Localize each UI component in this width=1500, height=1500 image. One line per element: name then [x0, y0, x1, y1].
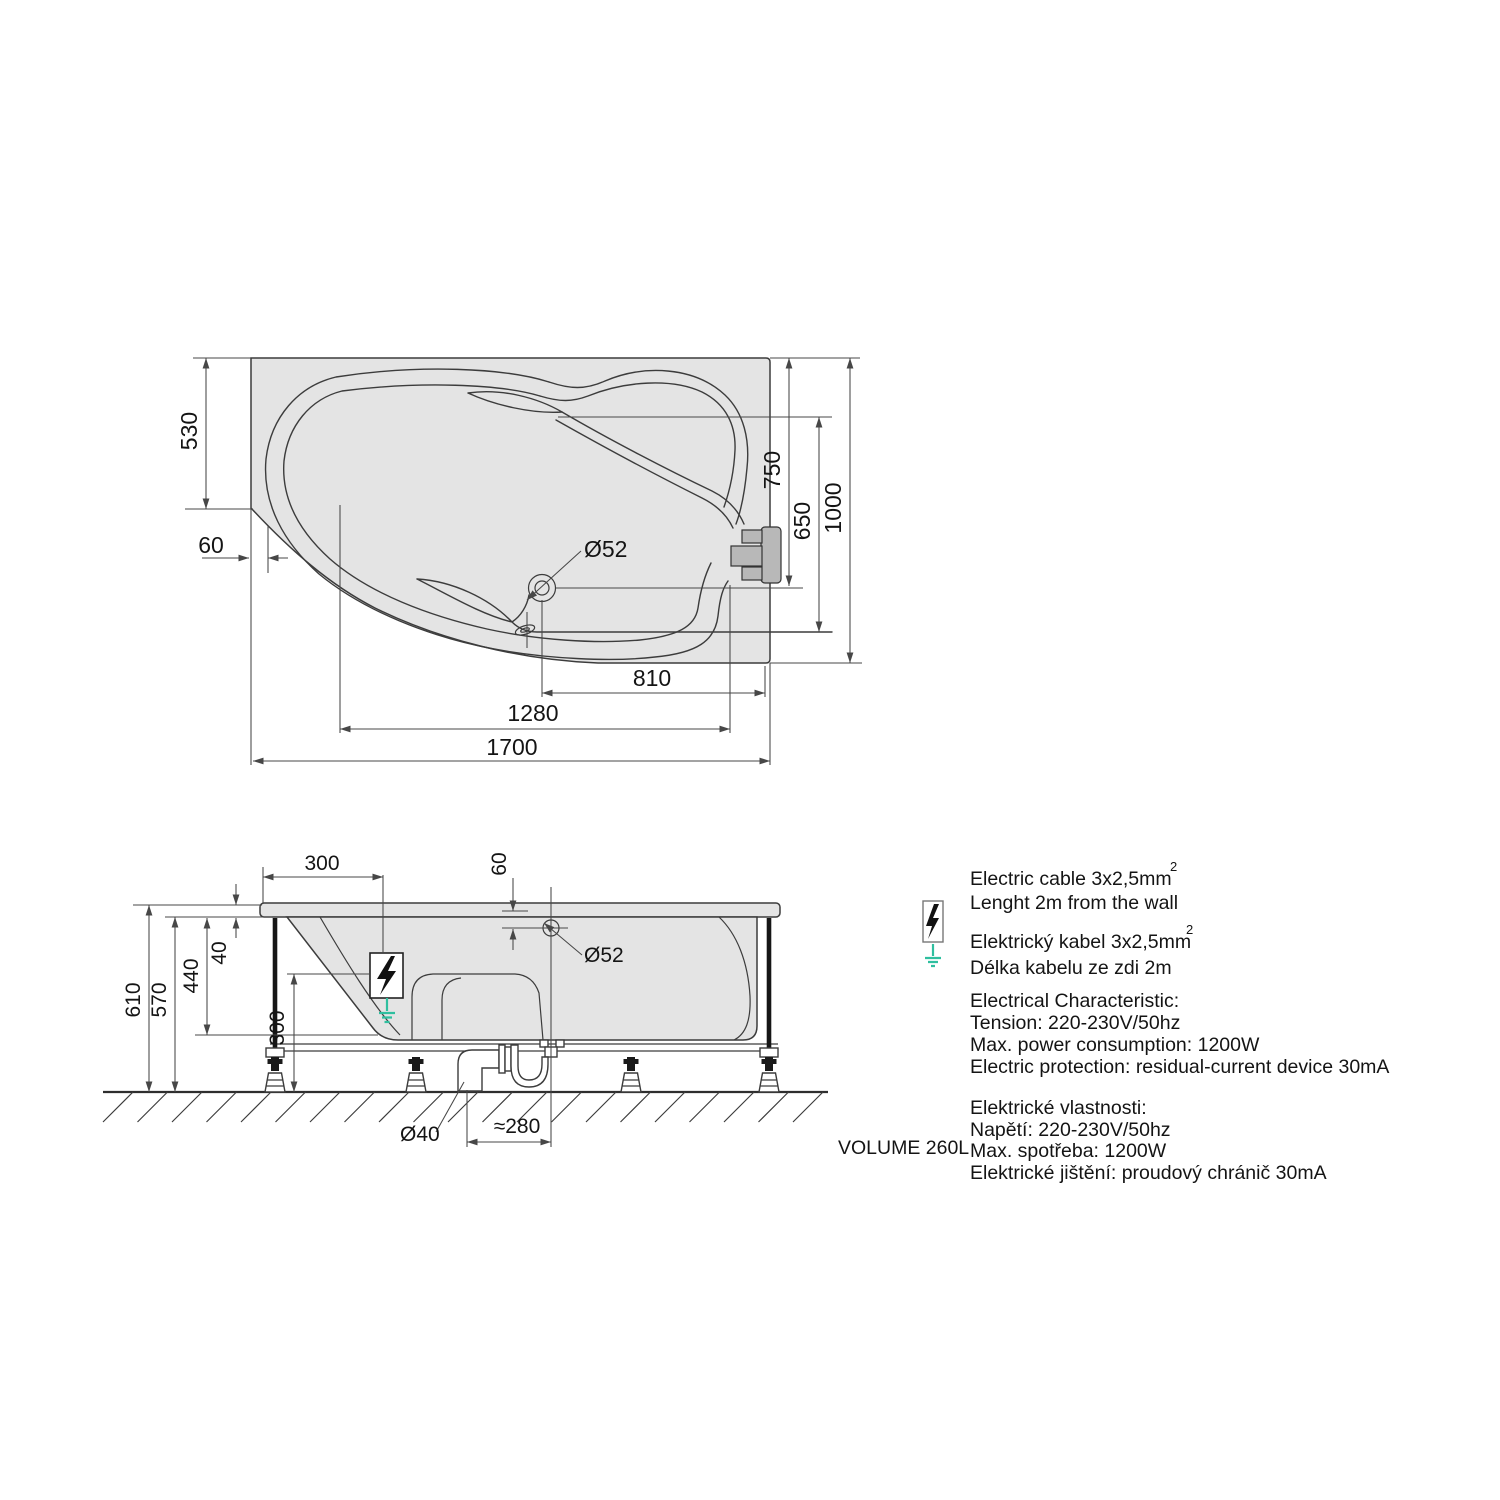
- dim-440: 440: [180, 958, 203, 993]
- note-cable-en-sup: 2: [1170, 859, 1177, 874]
- dim-280: ≈280: [494, 1115, 541, 1138]
- drawing-sheet: 530 60 750 650 1000 810 1280 1700 Ø52: [0, 0, 1500, 1500]
- dim-60-top: 60: [198, 532, 224, 558]
- note-cable-cz-1: Elektrický kabel 3x2,5mm: [970, 931, 1191, 953]
- dim-60-side: 60: [488, 852, 511, 875]
- ground-icon-small: [925, 944, 941, 966]
- dim-drain-dia-side: Ø52: [584, 944, 624, 967]
- tub-rim-section: [260, 903, 780, 917]
- note-elec-en-1: Tension: 220-230V/50hz: [970, 1012, 1180, 1034]
- dim-610: 610: [122, 982, 145, 1017]
- dim-1700: 1700: [486, 734, 537, 760]
- note-elec-en-title: Electrical Characteristic:: [970, 990, 1179, 1012]
- note-elec-cz-title: Elektrické vlastnosti:: [970, 1097, 1147, 1119]
- note-elec-cz-1: Napětí: 220-230V/50hz: [970, 1119, 1171, 1141]
- top-view: 530 60 750 650 1000 810 1280 1700 Ø52: [176, 358, 862, 765]
- dim-300-frame: 300: [266, 1010, 289, 1045]
- dim-570: 570: [148, 982, 171, 1017]
- dim-750: 750: [759, 451, 785, 489]
- note-cable-en-2: Lenght 2m from the wall: [970, 892, 1178, 914]
- dim-300-top: 300: [304, 852, 339, 875]
- tub-deck-outline: [251, 358, 770, 663]
- volume-label: VOLUME 260L: [838, 1137, 969, 1159]
- note-elec-en-2: Max. power consumption: 1200W: [970, 1034, 1260, 1056]
- dim-1000: 1000: [820, 482, 846, 533]
- dim-drain-dia-top: Ø52: [584, 536, 627, 562]
- technical-drawing: 530 60 750 650 1000 810 1280 1700 Ø52: [0, 0, 1500, 1500]
- dim-waste-dia: Ø40: [400, 1123, 440, 1146]
- side-view: 610 570 440 40 300 300 60 Ø52 Ø40 ≈280 V…: [103, 852, 969, 1159]
- note-elec-en-3: Electric protection: residual-current de…: [970, 1056, 1389, 1078]
- siphon-trap: [458, 1045, 557, 1091]
- notes-block: Electric cable 3x2,5mm 2 Lenght 2m from …: [923, 859, 1389, 1184]
- dim-40: 40: [208, 941, 231, 964]
- dim-650: 650: [789, 502, 815, 540]
- note-elec-cz-2: Max. spotřeba: 1200W: [970, 1140, 1167, 1162]
- note-cable-en-1: Electric cable 3x2,5mm: [970, 868, 1172, 890]
- note-elec-cz-3: Elektrické jištění: proudový chránič 30m…: [970, 1162, 1327, 1184]
- floor-hatching: [103, 1092, 823, 1122]
- drain-flange: [540, 1040, 548, 1047]
- dim-1280: 1280: [507, 700, 558, 726]
- dim-810: 810: [633, 665, 671, 691]
- note-cable-cz-2: Délka kabelu ze zdi 2m: [970, 957, 1172, 979]
- note-cable-cz-sup: 2: [1186, 922, 1193, 937]
- electric-symbol: [923, 901, 943, 966]
- dim-530: 530: [176, 412, 202, 450]
